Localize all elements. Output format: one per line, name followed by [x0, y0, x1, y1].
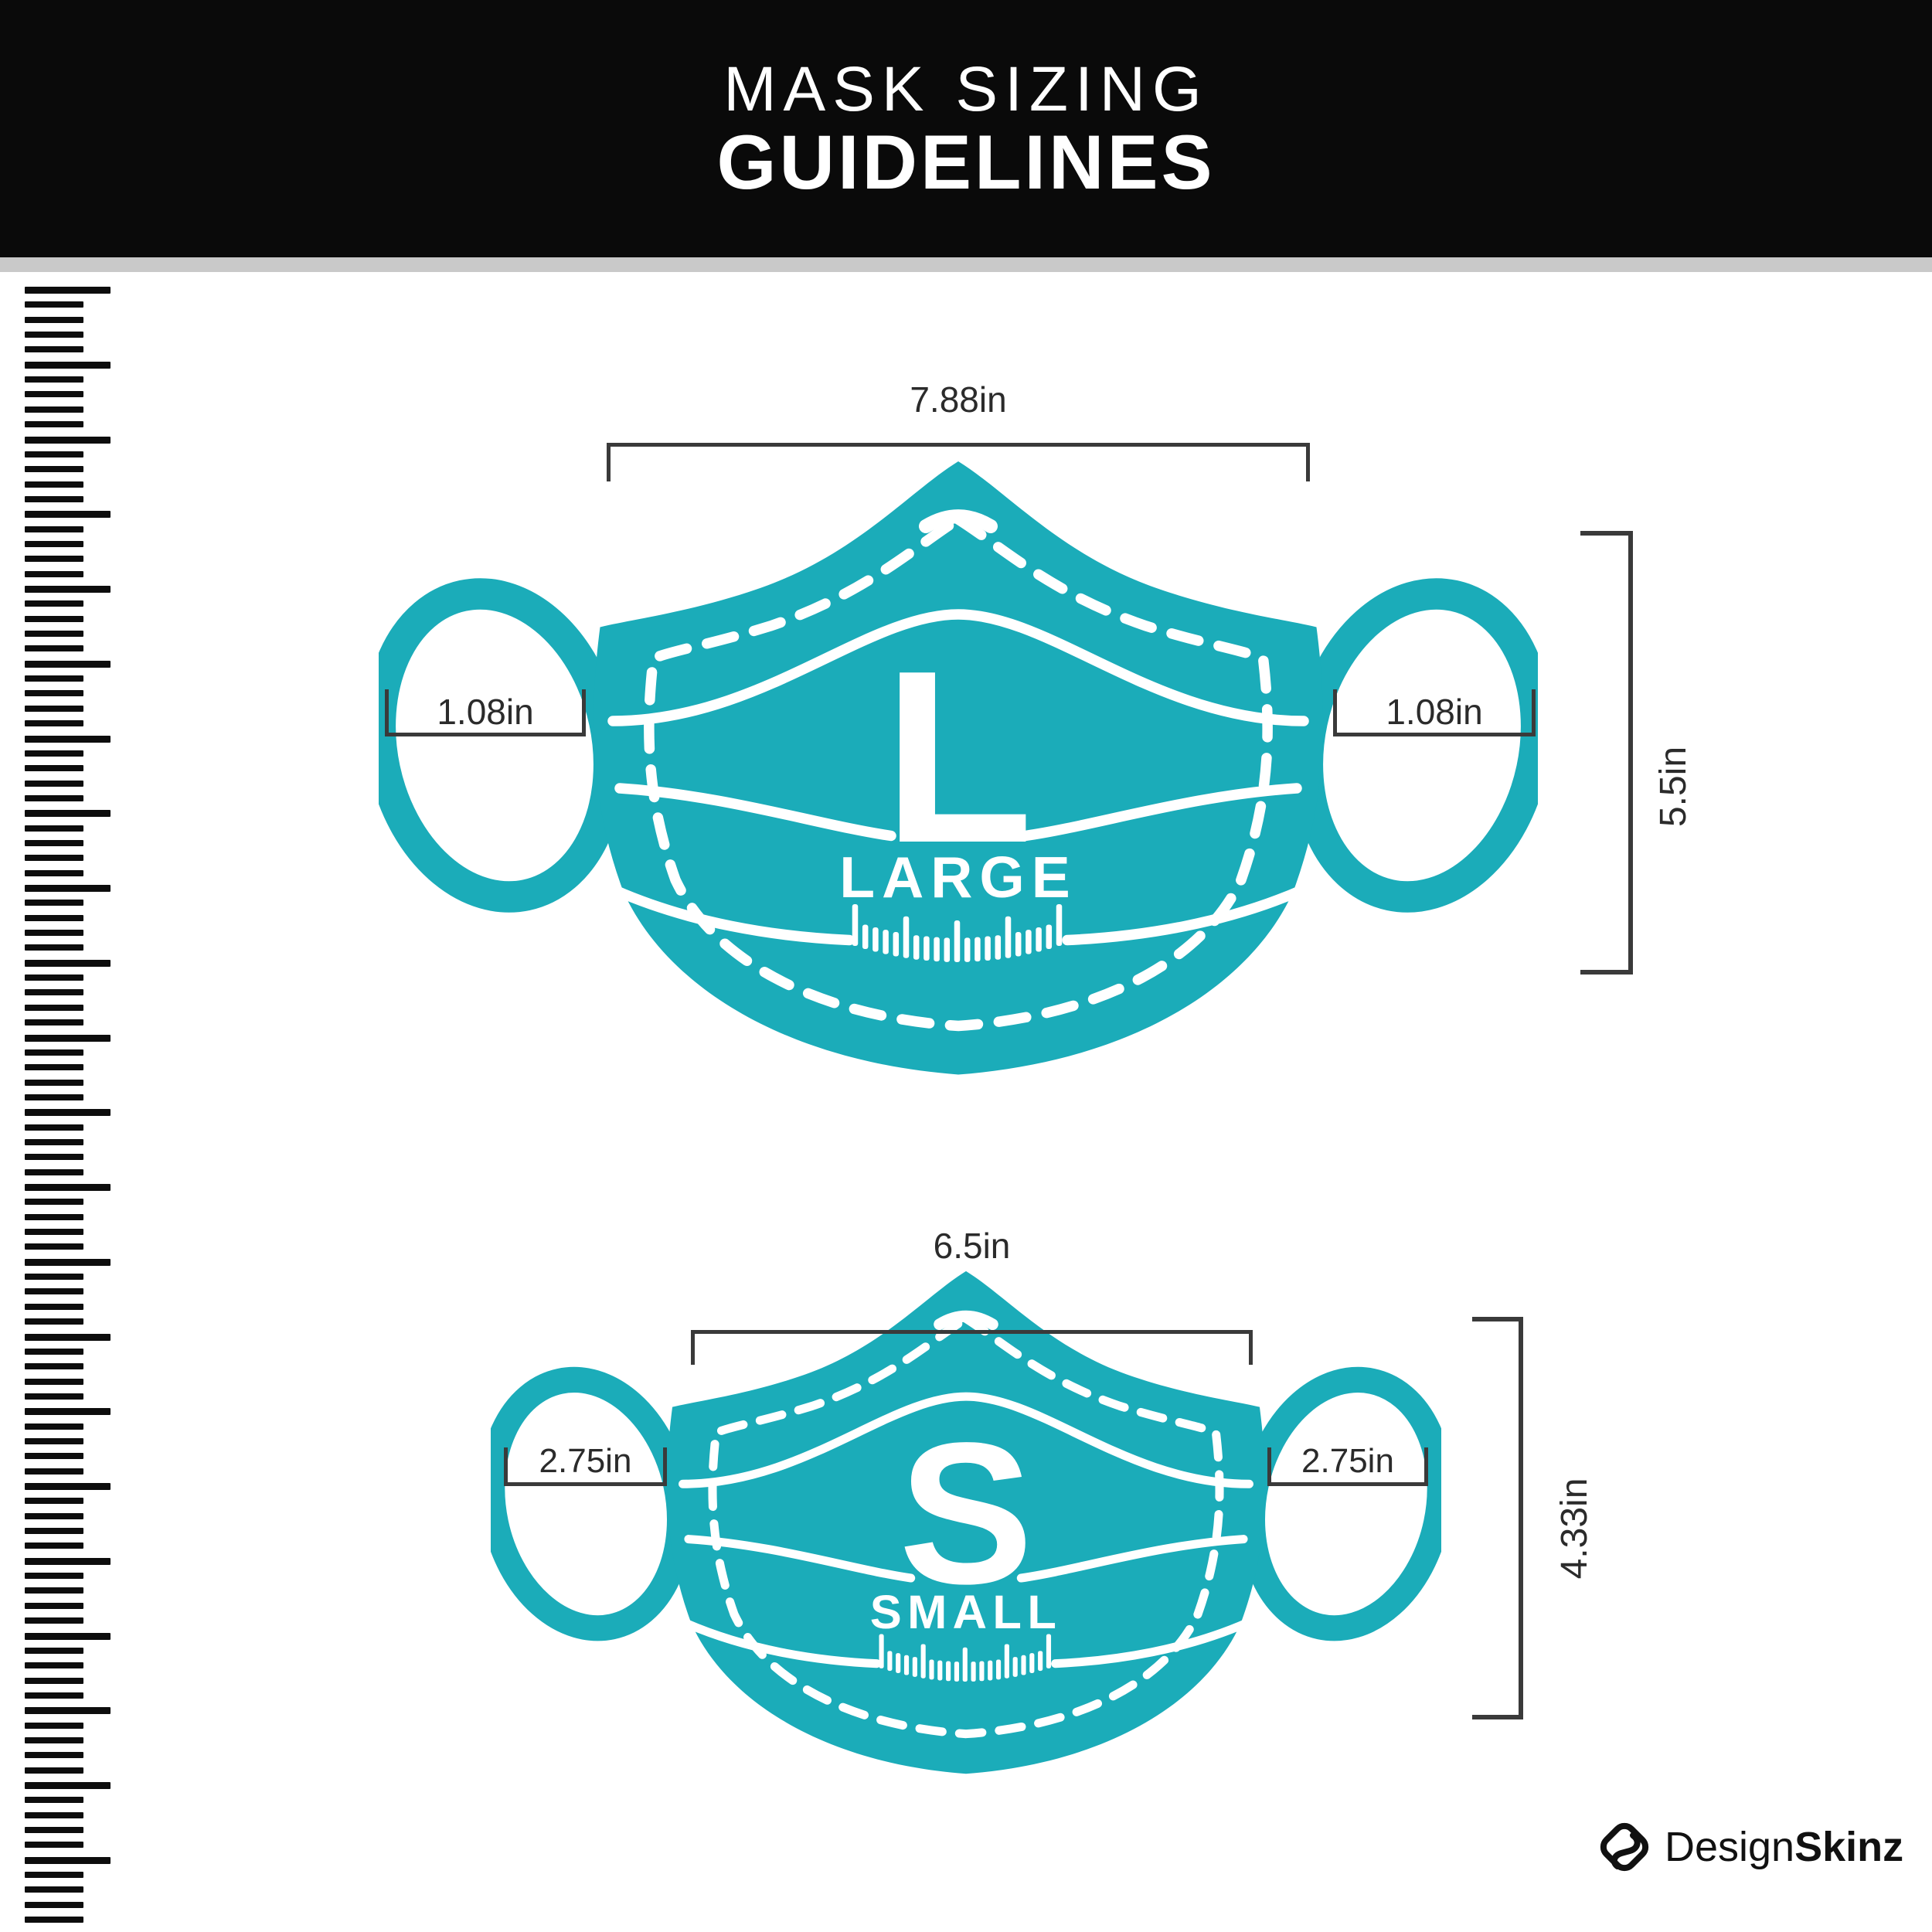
ruler-tick — [25, 1214, 83, 1220]
ruler-tick — [25, 1872, 83, 1878]
ruler-tick — [25, 1483, 111, 1490]
ruler-tick — [25, 645, 83, 651]
ruler-tick — [25, 332, 83, 338]
ruler-tick — [25, 1154, 83, 1160]
ruler-tick — [25, 1049, 83, 1056]
brand-name-regular: Design — [1665, 1824, 1794, 1870]
brand-name-bold: Skinz — [1794, 1824, 1903, 1870]
ruler-tick — [25, 1005, 83, 1011]
ruler-tick — [25, 1707, 111, 1714]
small-size-name: SMALL — [870, 1586, 1063, 1639]
small-width-bracket — [691, 1330, 1253, 1365]
ruler-tick — [25, 376, 83, 383]
ruler-tick — [25, 287, 111, 294]
ruler-tick — [25, 1169, 83, 1175]
ruler-tick — [25, 1842, 83, 1848]
small-ear-right-bracket — [1267, 1447, 1428, 1486]
ruler-tick — [25, 511, 111, 518]
ruler-tick — [25, 362, 111, 369]
ruler-tick — [25, 616, 83, 622]
ruler-tick — [25, 1543, 83, 1549]
large-mask-svg: L LARGE — [379, 452, 1538, 1078]
ruler-tick — [25, 690, 83, 696]
ruler-tick — [25, 750, 83, 757]
small-height-bracket — [1472, 1317, 1523, 1719]
ruler-tick — [25, 1468, 83, 1475]
ruler-tick — [25, 1767, 83, 1774]
large-height-bracket — [1580, 531, 1633, 975]
ruler-tick — [25, 1886, 83, 1893]
ruler-tick — [25, 736, 111, 743]
ruler-tick — [25, 1617, 83, 1624]
ruler-tick — [25, 975, 83, 981]
ruler-tick — [25, 1080, 83, 1086]
ruler-tick — [25, 1109, 111, 1116]
side-ruler — [0, 0, 124, 1932]
ruler-tick — [25, 1662, 83, 1668]
ruler-tick — [25, 1349, 83, 1355]
ruler-tick — [25, 466, 83, 472]
ruler-tick — [25, 556, 83, 562]
brand-name: DesignSkinz — [1665, 1823, 1903, 1871]
ruler-tick — [25, 1408, 111, 1415]
large-width-bracket — [607, 443, 1310, 481]
ruler-tick — [25, 1603, 83, 1609]
ruler-tick — [25, 1558, 111, 1565]
ruler-tick — [25, 406, 83, 413]
ruler-tick — [25, 346, 83, 352]
ruler-tick — [25, 1453, 83, 1459]
infographic-canvas: MASK SIZING GUIDELINES L LARGE 7.88in 1.… — [0, 0, 1932, 1932]
title-line-1: MASK SIZING — [723, 56, 1209, 123]
small-height-label: 4.33in — [1555, 1446, 1594, 1611]
ruler-tick — [25, 1782, 111, 1789]
ruler-tick — [25, 1019, 83, 1026]
ruler-tick — [25, 1229, 83, 1235]
ruler-tick — [25, 586, 111, 593]
ruler-tick — [25, 840, 83, 846]
ruler-tick — [25, 661, 111, 668]
ruler-tick — [25, 1587, 83, 1594]
ruler-tick — [25, 870, 83, 876]
ruler-tick — [25, 1812, 83, 1818]
ruler-tick — [25, 1304, 83, 1310]
ruler-tick — [25, 781, 83, 787]
small-ear-left-bracket — [504, 1447, 667, 1486]
ruler-tick — [25, 301, 83, 308]
ruler-tick — [25, 1902, 83, 1908]
ruler-tick — [25, 631, 83, 637]
ruler-tick — [25, 885, 111, 892]
ruler-tick — [25, 1423, 83, 1430]
ruler-tick — [25, 1139, 83, 1145]
ruler-tick — [25, 391, 83, 397]
ruler-tick — [25, 526, 83, 532]
ruler-tick — [25, 1857, 111, 1864]
ruler-tick — [25, 706, 83, 712]
ruler-tick — [25, 541, 83, 547]
ruler-tick — [25, 1737, 83, 1743]
ruler-tick — [25, 1274, 83, 1280]
ruler-tick — [25, 1648, 83, 1654]
large-width-label: 7.88in — [607, 378, 1310, 421]
ruler-tick — [25, 1393, 83, 1400]
ruler-tick — [25, 795, 83, 801]
title-line-2: GUIDELINES — [716, 123, 1215, 202]
header-banner: MASK SIZING GUIDELINES — [0, 0, 1932, 257]
large-mask-illustration: L LARGE — [379, 452, 1538, 1078]
ruler-tick — [25, 1318, 83, 1325]
large-ear-right-bracket — [1333, 689, 1536, 736]
ruler-tick — [25, 855, 83, 861]
ruler-tick — [25, 1438, 83, 1444]
ruler-tick — [25, 1573, 83, 1579]
ruler-tick — [25, 1723, 83, 1729]
ruler-tick — [25, 915, 83, 921]
ruler-tick — [25, 1513, 83, 1519]
ruler-tick — [25, 481, 83, 488]
ruler-tick — [25, 825, 83, 832]
ruler-tick — [25, 989, 83, 995]
ruler-tick — [25, 600, 83, 607]
ruler-tick — [25, 1184, 111, 1191]
ruler-tick — [25, 451, 83, 457]
ruler-tick — [25, 421, 83, 427]
ruler-tick — [25, 317, 83, 323]
ruler-tick — [25, 1692, 83, 1699]
ruler-tick — [25, 1124, 83, 1131]
ruler-tick — [25, 1334, 111, 1341]
large-ear-left-bracket — [385, 689, 586, 736]
ruler-tick — [25, 1363, 83, 1369]
ruler-tick — [25, 571, 83, 577]
ruler-tick — [25, 900, 83, 906]
ruler-tick — [25, 1917, 83, 1923]
ruler-tick — [25, 1379, 83, 1385]
header-divider — [0, 257, 1932, 272]
ruler-tick — [25, 1797, 83, 1803]
large-size-name: LARGE — [839, 845, 1077, 910]
ruler-tick — [25, 1259, 111, 1266]
ruler-tick — [25, 1288, 83, 1294]
large-height-label: 5.5in — [1654, 709, 1692, 864]
small-width-label: 6.5in — [691, 1224, 1253, 1267]
ruler-tick — [25, 1064, 83, 1070]
ruler-tick — [25, 1827, 83, 1833]
ruler-tick — [25, 765, 83, 771]
ruler-tick — [25, 1678, 83, 1684]
ruler-tick — [25, 1498, 83, 1504]
ruler-tick — [25, 720, 83, 726]
ruler-tick — [25, 1199, 83, 1205]
ruler-tick — [25, 1528, 83, 1534]
brand-logo-icon — [1594, 1816, 1655, 1878]
ruler-tick — [25, 930, 83, 936]
ruler-tick — [25, 1633, 111, 1640]
ruler-tick — [25, 675, 83, 682]
ruler-tick — [25, 1752, 83, 1758]
ruler-tick — [25, 1243, 83, 1250]
brand-logo: DesignSkinz — [1594, 1815, 1903, 1879]
ruler-tick — [25, 944, 83, 951]
ruler-tick — [25, 1094, 83, 1100]
ruler-tick — [25, 496, 83, 502]
ruler-tick — [25, 437, 111, 444]
ruler-tick — [25, 960, 111, 967]
ruler-tick — [25, 810, 111, 817]
ruler-tick — [25, 1035, 111, 1042]
